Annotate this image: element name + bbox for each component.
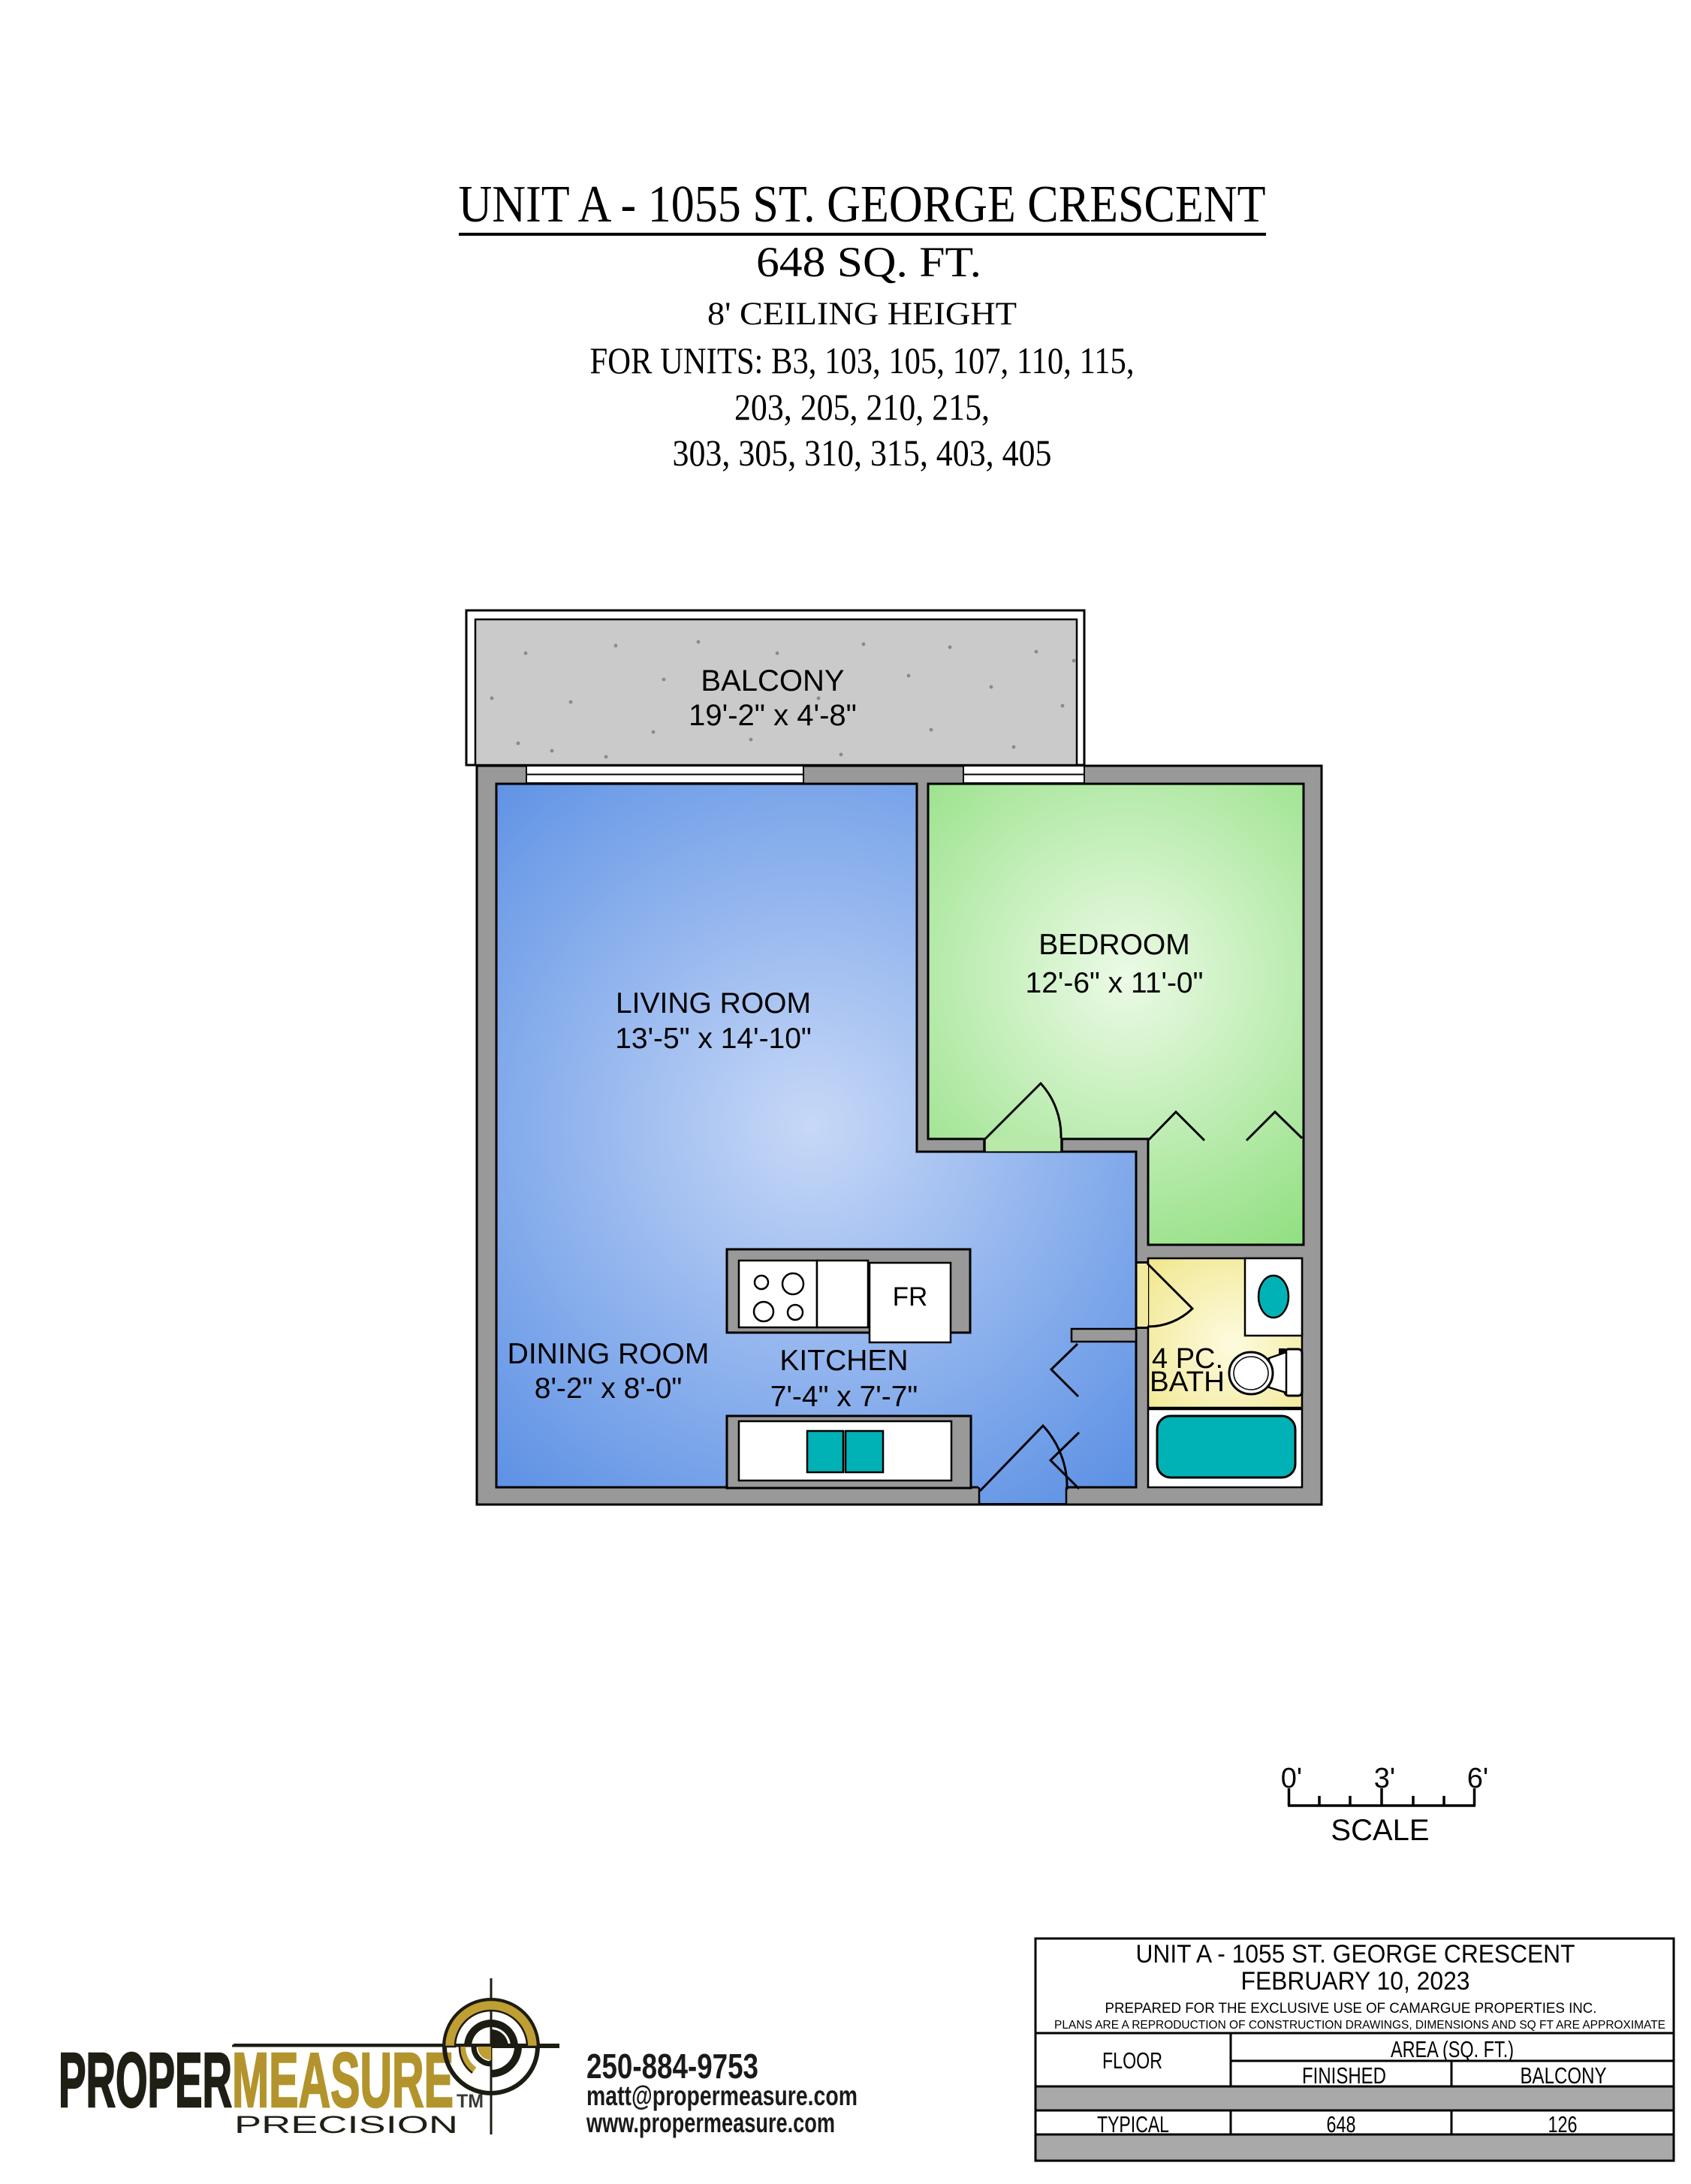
- svg-text:PRECISION: PRECISION: [234, 2111, 458, 2138]
- svg-text:648 SQ. FT.: 648 SQ. FT.: [756, 239, 981, 286]
- svg-text:8'-2" x 8'-0": 8'-2" x 8'-0": [535, 1372, 683, 1405]
- svg-text:MEASURE: MEASURE: [232, 2037, 454, 2123]
- svg-text:KITCHEN: KITCHEN: [779, 1345, 908, 1377]
- svg-text:BALCONY: BALCONY: [701, 664, 844, 697]
- svg-text:8' CEILING HEIGHT: 8' CEILING HEIGHT: [707, 297, 1017, 332]
- svg-text:13'-5" x 14'-10": 13'-5" x 14'-10": [615, 1023, 812, 1055]
- svg-text:FOR UNITS: B3, 103, 105, 107,: FOR UNITS: B3, 103, 105, 107, 110, 115,: [590, 339, 1135, 381]
- svg-text:BALCONY: BALCONY: [1521, 2062, 1607, 2089]
- svg-text:FINISHED: FINISHED: [1302, 2062, 1386, 2089]
- svg-text:203, 205, 210, 215,: 203, 205, 210, 215,: [734, 386, 990, 428]
- svg-text:SCALE: SCALE: [1331, 1814, 1429, 1847]
- svg-text:PROPER: PROPER: [59, 2037, 232, 2123]
- svg-text:BEDROOM: BEDROOM: [1038, 929, 1190, 961]
- svg-text:3': 3': [1374, 1763, 1395, 1794]
- svg-text:TM: TM: [457, 2091, 484, 2112]
- svg-text:UNIT A - 1055 ST. GEORGE CRESC: UNIT A - 1055 ST. GEORGE CRESCENT: [1136, 1940, 1575, 1969]
- svg-text:FEBRUARY 10, 2023: FEBRUARY 10, 2023: [1241, 1967, 1470, 1996]
- svg-text:TYPICAL: TYPICAL: [1097, 2111, 1169, 2137]
- svg-text:303, 305, 310, 315, 403, 405: 303, 305, 310, 315, 403, 405: [673, 432, 1052, 474]
- svg-text:FLOOR: FLOOR: [1102, 2047, 1162, 2074]
- svg-text:www.propermeasure.com: www.propermeasure.com: [586, 2107, 835, 2138]
- svg-text:19'-2" x 4'-8": 19'-2" x 4'-8": [689, 699, 857, 732]
- svg-text:PLANS ARE A REPRODUCTION OF CO: PLANS ARE A REPRODUCTION OF CONSTRUCTION…: [1054, 2019, 1665, 2032]
- svg-text:126: 126: [1548, 2111, 1578, 2137]
- svg-text:FR: FR: [893, 1282, 928, 1312]
- svg-text:0': 0': [1281, 1763, 1302, 1794]
- svg-text:648: 648: [1327, 2111, 1356, 2137]
- svg-text:12'-6" x 11'-0": 12'-6" x 11'-0": [1026, 967, 1204, 999]
- svg-text:7'-4" x 7'-7": 7'-4" x 7'-7": [770, 1381, 918, 1413]
- svg-text:PREPARED FOR THE EXCLUSIVE USE: PREPARED FOR THE EXCLUSIVE USE OF CAMARG…: [1105, 2001, 1597, 2017]
- svg-text:matt@propermeasure.com: matt@propermeasure.com: [586, 2080, 858, 2111]
- svg-text:DINING ROOM: DINING ROOM: [508, 1338, 710, 1370]
- svg-text:LIVING ROOM: LIVING ROOM: [616, 987, 811, 1020]
- svg-text:6': 6': [1467, 1763, 1488, 1794]
- svg-text:UNIT A - 1055 ST. GEORGE CRESC: UNIT A - 1055 ST. GEORGE CRESCENT: [459, 176, 1266, 233]
- svg-text:BATH: BATH: [1150, 1366, 1225, 1398]
- svg-text:AREA (SQ. FT.): AREA (SQ. FT.): [1391, 2036, 1514, 2062]
